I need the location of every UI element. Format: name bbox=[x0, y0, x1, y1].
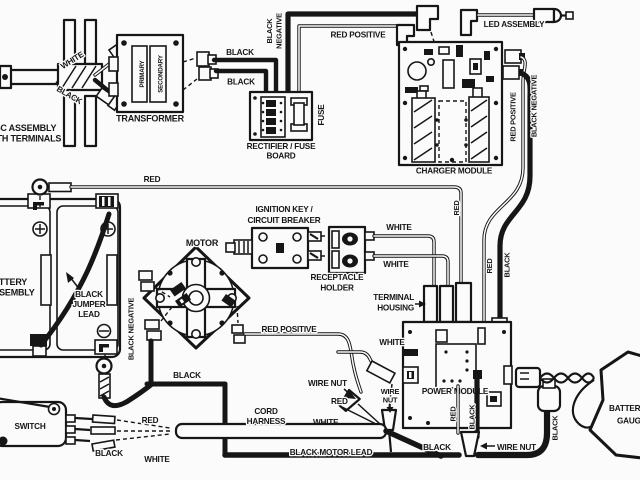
loop-black-label: BLACK bbox=[551, 415, 560, 441]
ignition-label-2: CIRCUIT BREAKER bbox=[248, 216, 321, 225]
junction-black-label: BLACK bbox=[423, 443, 451, 452]
wire-nut-a-label: WIRE NUT bbox=[308, 379, 347, 388]
junction-wire-nut-label: WIRE NUT bbox=[497, 443, 536, 452]
rectifier-fuse-board: FUSE RECTIFIER / FUSE BOARD bbox=[247, 92, 326, 161]
mid-black-label: BLACK bbox=[503, 252, 512, 278]
charger-capacitor bbox=[408, 62, 426, 80]
switch-label: SWITCH bbox=[14, 422, 45, 431]
charger-red-positive-label: RED POSITIVE bbox=[509, 92, 518, 142]
charger-red-plug bbox=[505, 50, 521, 63]
black-negative-col1: BLACK bbox=[265, 18, 274, 44]
jumper-label-2: JUMPER bbox=[73, 300, 106, 309]
switch: SWITCH RED BLACK WHITE bbox=[0, 398, 170, 464]
red-vertical-label: RED bbox=[452, 200, 461, 216]
ignition-key-circuit-breaker: IGNITION KEY / CIRCUIT BREAKER bbox=[226, 205, 329, 268]
mid-red-label: RED bbox=[485, 258, 494, 274]
battery-gauge-label-1: BATTERY bbox=[609, 404, 640, 413]
housing-slot-2 bbox=[440, 286, 453, 322]
power-module-right-connector bbox=[504, 366, 512, 384]
black-motor-lead-label: BLACK MOTOR LEAD bbox=[290, 448, 373, 457]
charger-winding-left bbox=[412, 98, 435, 162]
battery-assembly: BLACK JUMPER LEAD BATTERY ASSEMBLY BLACK… bbox=[0, 180, 136, 399]
cord-harness-label-1: CORD bbox=[254, 407, 278, 416]
secondary-label: SECONDARY bbox=[158, 54, 165, 93]
white-lead-ferrule bbox=[367, 361, 395, 383]
black-wire-upper-label: BLACK bbox=[226, 48, 254, 57]
receptacle-label-1: RECEPTACLE bbox=[311, 273, 365, 282]
white-stub-label: WHITE bbox=[379, 338, 405, 347]
switch-ferrule-2 bbox=[91, 427, 115, 434]
wire-nut-c bbox=[461, 432, 479, 456]
white-wire-b-label: WHITE bbox=[383, 260, 409, 269]
ignition-label-1: IGNITION KEY / bbox=[255, 205, 313, 214]
rectifier-label-2: BOARD bbox=[266, 152, 295, 161]
jumper-label-3: LEAD bbox=[78, 310, 100, 319]
wiring-diagram-page: WHITE BLACK DISC ASSEMBLY WITH TERMINALS… bbox=[0, 0, 640, 480]
axle-end-pin bbox=[2, 74, 8, 80]
transformer: PRIMARY SECONDARY TRANSFORMER bbox=[109, 35, 218, 124]
battery-gauge-label-2: GAUGE bbox=[617, 417, 640, 426]
led-elbow-connector bbox=[461, 10, 477, 35]
led-assembly: LED ASSEMBLY bbox=[461, 9, 573, 35]
led-assembly-label: LED ASSEMBLY bbox=[484, 20, 545, 29]
white-wire-a-label: WHITE bbox=[386, 223, 412, 232]
transformer-label: TRANSFORMER bbox=[116, 114, 184, 124]
battery-assembly-label-2: ASSEMBLY bbox=[0, 288, 35, 298]
black-negative-col2: NEGATIVE bbox=[275, 13, 284, 49]
gauge-plug bbox=[516, 368, 540, 387]
battery-black-negative-label: BLACK NEGATIVE bbox=[127, 298, 136, 361]
motor-red-positive-label: RED POSITIVE bbox=[262, 325, 318, 334]
disc-assembly-label-1: DISC ASSEMBLY bbox=[0, 123, 56, 133]
transformer-connector-b bbox=[199, 67, 211, 80]
motor-connector-upper-left bbox=[139, 271, 152, 280]
charger-module-label: CHARGER MODULE bbox=[416, 167, 493, 176]
ignition-key bbox=[234, 240, 252, 254]
black-elbow-connector bbox=[417, 6, 438, 30]
battery-red-label: RED bbox=[144, 175, 161, 184]
battery-assembly-label-1: BATTERY bbox=[0, 277, 27, 287]
motor: MOTOR bbox=[139, 238, 249, 348]
charger-relay bbox=[443, 60, 454, 88]
cord-harness-label-2: HARNESS bbox=[247, 417, 286, 426]
red-positive-top-label: RED POSITIVE bbox=[331, 31, 387, 40]
switch-white-label: WHITE bbox=[144, 455, 170, 464]
led-bulb-tip bbox=[554, 9, 561, 22]
receptacle-label-2: HOLDER bbox=[320, 284, 354, 293]
fuse-body bbox=[294, 103, 304, 125]
charger-black-plug bbox=[503, 66, 519, 79]
rectifier-label-1: RECTIFIER / FUSE bbox=[247, 142, 316, 151]
loop-end-connector bbox=[538, 386, 560, 411]
motor-connector-lower-left bbox=[145, 320, 159, 329]
disc-assembly-label-2: WITH TERMINALS bbox=[0, 134, 61, 144]
charger-black-negative-label: BLACK NEGATIVE bbox=[530, 75, 539, 138]
charger-module: CHARGER MODULE bbox=[399, 42, 502, 176]
motor-connector-right bbox=[232, 325, 243, 333]
battery-negative-lead bbox=[104, 384, 152, 406]
black-run-label: BLACK bbox=[173, 371, 201, 380]
power-module-ic bbox=[436, 344, 476, 388]
fuse-label: FUSE bbox=[317, 104, 326, 126]
wire-nut-cluster: WIRE NUT WIRE NUT RED WHITE bbox=[308, 379, 400, 452]
housing-slot-3 bbox=[456, 283, 471, 322]
primary-label: PRIMARY bbox=[139, 59, 146, 87]
wiring-diagram-canvas: WHITE BLACK DISC ASSEMBLY WITH TERMINALS… bbox=[0, 0, 640, 480]
wire-nut-b-label-2: NUT bbox=[383, 396, 398, 405]
switch-red-label: RED bbox=[142, 416, 159, 425]
jumper-label-1: BLACK bbox=[75, 290, 103, 299]
switch-black-label: BLACK bbox=[95, 449, 123, 458]
white-wires: WHITE WHITE bbox=[374, 223, 448, 286]
transformer-connector-a bbox=[197, 52, 209, 66]
terminal-housing-label-1: TERMINAL bbox=[373, 293, 414, 302]
red-fan-label: RED bbox=[331, 397, 348, 406]
black-wire-lower-label: BLACK bbox=[227, 78, 255, 87]
motor-label: MOTOR bbox=[186, 238, 219, 248]
cord-harness-cable bbox=[176, 424, 386, 438]
switch-ferrule-1 bbox=[93, 415, 115, 424]
pm-black-label: BLACK bbox=[468, 404, 477, 430]
charger-winding-right bbox=[469, 97, 489, 162]
cord-harness: CORD HARNESS BLACK MOTOR LEAD bbox=[176, 407, 441, 457]
terminal-housing-label-2: HOUSING bbox=[377, 304, 414, 313]
pm-red-label: RED bbox=[449, 406, 458, 422]
power-module: POWER MODULE RED BLACK bbox=[403, 322, 540, 437]
